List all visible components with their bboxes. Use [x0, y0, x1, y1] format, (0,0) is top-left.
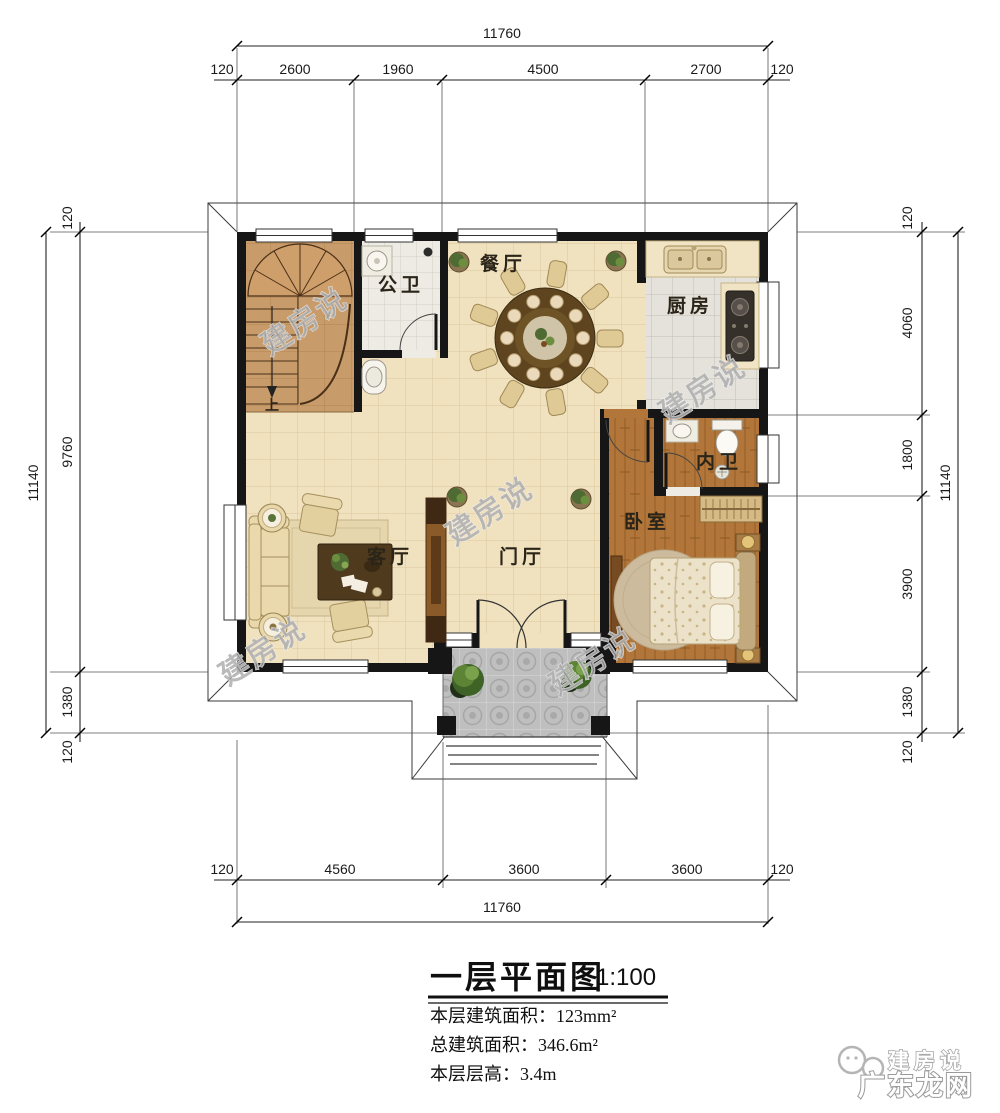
- label-kitchen: 厨房: [667, 294, 713, 317]
- floor-plan-canvas: 11760 120 2600 1960 4500 2700 120 120 45…: [0, 0, 1000, 1113]
- dim-top-seg-3: 4500: [527, 61, 558, 77]
- dim-right-seg-3: 3900: [899, 568, 915, 599]
- window-guest-bath-top: [365, 229, 413, 242]
- dim-top-seg-4: 2700: [690, 61, 721, 77]
- dim-right-seg-5: 120: [899, 740, 915, 764]
- window-kitchen-right: [757, 282, 779, 368]
- dim-bottom-overall: 11760: [483, 899, 521, 915]
- dim-left-seg-0: 120: [59, 206, 75, 230]
- dim-right-overall: 11140: [937, 464, 953, 501]
- porch-pillar-right: [591, 716, 610, 735]
- dimension-top: 11760 120 2600 1960 4500 2700 120: [210, 25, 794, 85]
- dim-bottom-seg-0: 120: [210, 861, 234, 877]
- dim-right-seg-2: 1800: [899, 439, 915, 470]
- brand-name-top: 建房说: [888, 1049, 966, 1073]
- dim-bottom-seg-1: 4560: [324, 861, 355, 877]
- dim-bottom-seg-3: 3600: [671, 861, 702, 877]
- window-living-left: [224, 505, 246, 620]
- dim-left-seg-2: 1380: [59, 686, 75, 717]
- floor-area-text: 本层建筑面积：123mm²: [430, 1006, 616, 1026]
- dim-top-seg-5: 120: [770, 61, 794, 77]
- dim-left-seg-3: 120: [59, 740, 75, 764]
- dimension-right: 120 4060 1800 3900 1380 120 11140: [899, 206, 963, 764]
- label-dining: 餐厅: [480, 252, 526, 275]
- window-entry-sidelight-left: [446, 633, 472, 647]
- porch-pillar-left: [437, 716, 456, 735]
- dim-right-seg-0: 120: [899, 206, 915, 230]
- dimension-bottom: 120 4560 3600 3600 120 11760: [210, 861, 794, 927]
- dim-right-seg-1: 4060: [899, 307, 915, 338]
- window-inner-bath-right: [757, 435, 779, 483]
- label-guest-bath: 公卫: [378, 274, 424, 296]
- window-stair-top: [256, 229, 332, 242]
- lamp-bottom: [742, 649, 754, 661]
- dim-bottom-seg-2: 3600: [508, 861, 539, 877]
- dim-top-seg-2: 1960: [382, 61, 413, 77]
- lamp-top: [742, 536, 755, 549]
- pillow-2: [710, 604, 734, 640]
- dimension-left: 11140 120 9760 1380 120: [25, 206, 85, 764]
- total-area-text: 总建筑面积：346.6m²: [430, 1035, 598, 1055]
- floor-drain: [424, 248, 433, 257]
- floor-height-text: 本层层高：3.4m: [430, 1064, 557, 1084]
- pillow-1: [710, 562, 734, 598]
- dim-top-seg-0: 120: [210, 61, 234, 77]
- label-foyer: 门厅: [499, 545, 545, 568]
- dim-left-overall: 11140: [25, 464, 41, 501]
- dim-bottom-seg-4: 120: [770, 861, 794, 877]
- label-bedroom: 卧室: [624, 510, 670, 533]
- dim-right-seg-4: 1380: [899, 686, 915, 717]
- window-living-bottom: [283, 660, 368, 673]
- label-living: 客厅: [367, 545, 413, 568]
- title-block: 一层平面图 1:100 本层建筑面积：123mm² 总建筑面积：346.6m² …: [428, 959, 668, 1084]
- tv-partition: [426, 498, 446, 642]
- brand-logo: 建房说 广东龙网: [839, 1047, 974, 1101]
- plan-scale: 1:100: [596, 964, 656, 991]
- window-bedroom-bottom: [633, 660, 727, 673]
- label-inner-bath: 内卫: [696, 450, 742, 473]
- floor-plan-page: 11760 120 2600 1960 4500 2700 120 120 45…: [0, 0, 1000, 1113]
- dim-top-seg-1: 2600: [279, 61, 310, 77]
- plan-title: 一层平面图: [430, 959, 605, 995]
- dim-top-overall: 11760: [483, 25, 521, 41]
- sofa: [249, 516, 289, 628]
- toilet-tank: [712, 420, 742, 430]
- brand-name-bottom: 广东龙网: [858, 1070, 974, 1101]
- window-dining-top: [458, 229, 557, 242]
- dim-left-seg-1: 9760: [59, 436, 75, 467]
- label-stair-up: 上: [265, 398, 279, 414]
- porch-steps: [443, 737, 607, 764]
